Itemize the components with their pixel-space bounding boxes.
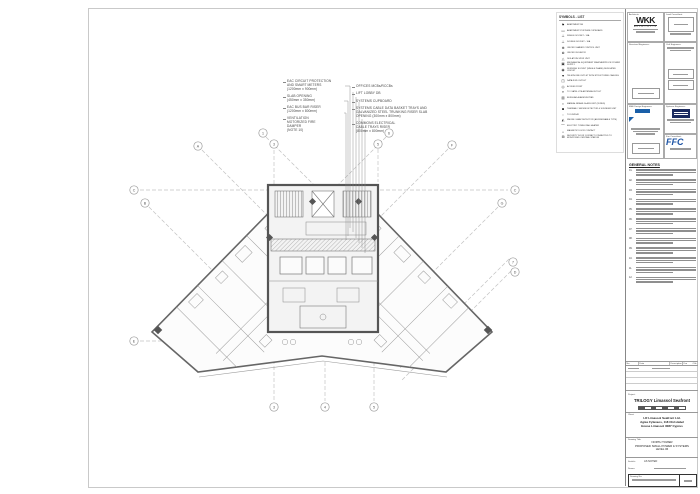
revision-col-label: No.	[626, 362, 639, 365]
left-annotations: EAC CIRCUIT PROTECTION AND SMART METERS …	[283, 80, 347, 136]
note-item: 05.	[629, 208, 696, 216]
note-item: 06.	[629, 218, 696, 226]
note-item: 11.	[629, 267, 696, 275]
legend-item-label: DOUBLE SOCKET - 16A	[567, 41, 590, 43]
legend-symbol-icon: ▣	[559, 62, 567, 66]
legend-item-label: TELEPHONE OUTLET WITH STRUCTURED CABLING	[567, 75, 619, 77]
note-number: 02.	[629, 179, 636, 187]
legend-symbol-icon: ⊗	[559, 51, 567, 55]
legend-symbol-icon: ▼	[559, 74, 567, 78]
lift-shaft	[352, 257, 372, 274]
note-item: 10.	[629, 257, 696, 265]
grid-bubble-label: 1	[262, 131, 264, 135]
note-number: 05.	[629, 208, 636, 216]
stamp-box	[668, 17, 694, 32]
text-line	[638, 93, 654, 95]
grid-bubble-label: C	[133, 188, 136, 192]
legend-item-label: APARTMENT DB	[567, 24, 583, 26]
scale-bar	[638, 406, 686, 410]
note-item: 12.	[629, 276, 696, 284]
note-number: 07.	[629, 228, 636, 236]
note-text	[636, 208, 696, 216]
stamp-box	[632, 88, 660, 99]
legend-symbol-icon: ⊥	[559, 40, 567, 44]
note-number: 11.	[629, 267, 636, 275]
notes-list: 01. 02. 03. 04.	[629, 169, 696, 284]
text-line	[633, 131, 658, 133]
meta-section: Scale/s: AS NOTED Drawn:	[626, 458, 698, 474]
legend-item-label: TV / SATELLITE ANTENNA OUTLET	[567, 91, 601, 93]
civil-cell: Civil Engineers:	[664, 42, 697, 104]
drawing-sheet: ABCE1365FCG7D345 EAC CIRCUIT PROTECTION …	[0, 0, 700, 494]
general-notes: GENERAL NOTES 01. 02. 03.	[626, 161, 698, 359]
lift-shaft	[306, 257, 324, 274]
note-item: 09.	[629, 247, 696, 255]
note-text	[636, 189, 696, 197]
annotation-label: EAC CIRCUIT PROTECTION AND SMART METERS …	[283, 80, 347, 92]
grid-bubble-label: D	[514, 270, 517, 274]
text-line	[673, 85, 688, 87]
legend-item: ▣ MECHANICAL EQUIPMENT WEATHERPROOF POWE…	[559, 62, 621, 68]
note-text	[636, 228, 696, 236]
client-lines: LR Limassol Seafront Ltd.Agias Fylaxeos,…	[628, 416, 696, 428]
note-text	[636, 237, 696, 245]
mep-flag-logo-icon	[629, 117, 634, 122]
ffc-logo: FFC	[666, 138, 695, 147]
text-line	[670, 122, 692, 124]
grid-bubble-label: 3	[273, 142, 275, 146]
legend-item-label: BURGLAR ALARM KEYPAD	[567, 97, 594, 99]
grid-bubble-label: 5	[377, 142, 379, 146]
legend-list: ⚑ APARTMENT DB ▭ APARTMENT SYSTEMS CUPBO…	[559, 23, 621, 140]
revision-col-label: Description	[670, 362, 683, 365]
corridor	[271, 239, 375, 251]
legend-item-label: WORKING SOCKET (SINGLE PHASE) DEDICATED …	[567, 68, 621, 72]
drawn-label: Drawn:	[628, 468, 644, 470]
drawing-number-cell: Drawing No:	[629, 475, 680, 486]
wkk-logo: WKK	[629, 16, 662, 25]
legend-symbol-icon: ⊕	[559, 46, 567, 50]
note-text	[636, 179, 696, 187]
project-label: Project:	[628, 394, 696, 396]
project-name: TRILOGY Limassol Seafront	[628, 398, 696, 403]
lift-shaft	[328, 257, 346, 274]
legend-symbol-icon: ▪	[559, 102, 567, 106]
text-line	[632, 479, 675, 481]
legend-item-label: ON/OFF SHAVER CONTROL UNIT	[567, 47, 600, 49]
note-number: 08.	[629, 237, 636, 245]
legend-title: SYMBOLS - LIST	[559, 15, 621, 21]
note-item: 01.	[629, 169, 696, 177]
structural-label: Structural Engineers:	[629, 44, 662, 46]
grid-bubble-label: 4	[324, 405, 326, 409]
note-item: 04.	[629, 198, 696, 206]
note-item: 02.	[629, 179, 696, 187]
drawing-title-line: LEVEL 06	[628, 448, 696, 452]
legend-item: ◉ WORKING SOCKET (SINGLE PHASE) DEDICATE…	[559, 67, 621, 73]
legend-item-label: SINGLE SOCKET - 16A	[567, 35, 589, 37]
note-text	[636, 198, 696, 206]
legend-symbol-icon: ⊥	[559, 34, 567, 38]
grid-bubble-label: G	[501, 201, 504, 205]
annotation-label: OFFICES MCBs/RCCBs	[352, 85, 472, 89]
text-line	[670, 33, 692, 35]
note-item: 03.	[629, 189, 696, 197]
note-text	[636, 267, 696, 275]
title-block: Architects: WKK ARCHITECTS Lead Consulta…	[625, 9, 697, 486]
revision-row	[626, 384, 698, 389]
legend-item-label: ISOLATION SPUR UNIT	[567, 58, 590, 60]
legend-symbol-icon: ⚑	[559, 23, 567, 27]
lead-consultant-cell: Lead Consultant:	[664, 12, 697, 42]
text-line	[633, 29, 658, 31]
text-line	[674, 24, 688, 26]
stamp-box	[668, 69, 694, 79]
annotation-label: VENTILATION MOTORIZED FIRE DAMPER (NOTE …	[283, 117, 347, 132]
note-text	[636, 276, 696, 284]
legend-item-label: ACCESS POINT	[567, 86, 582, 88]
legend-symbol-icon: ◉	[559, 68, 567, 72]
client-line: House Limassol 3087 Cyprus	[628, 424, 696, 428]
lead-consultant-label: Lead Consultant:	[666, 14, 695, 16]
grid-bubble-label: 5	[373, 405, 375, 409]
note-number: 10.	[629, 257, 636, 265]
top-annotations: OFFICES MCBs/RCCBsLIFT LOBBY DBSYSTEMS C…	[352, 85, 472, 137]
architect-cell: Architects: WKK ARCHITECTS	[627, 12, 664, 42]
legend-symbol-icon: ▫	[559, 113, 567, 117]
note-number: 12.	[629, 276, 636, 284]
client-section: Client: LR Limassol Seafront Ltd.Agias F…	[626, 413, 698, 438]
drawing-title-lines: NORTH TOWERPROPOSED SMALL POWER & SYSTEM…	[628, 441, 696, 452]
mep-cell: M&E Design Engineers:	[627, 104, 664, 159]
stair-right	[343, 191, 371, 217]
note-number: 04.	[629, 198, 636, 206]
drawing-number-label: Drawing No:	[630, 476, 678, 478]
text-line	[638, 148, 654, 150]
revision-table: No.DateDescriptionDrnChk	[626, 361, 698, 391]
legend-item-label: APARTMENT SYSTEMS CUPBOARD	[567, 30, 602, 32]
note-text	[636, 257, 696, 265]
legend-item-label: THERMAL / SMOKE DETECTOR & SOUNDER UNIT	[567, 108, 616, 110]
note-item: 08.	[629, 237, 696, 245]
stamp-box	[668, 80, 694, 90]
civil-label: Civil Engineers:	[666, 44, 695, 46]
stamp-box	[632, 143, 660, 154]
general-notes-title: GENERAL NOTES	[629, 163, 696, 167]
note-text	[636, 169, 696, 177]
revision-cell	[680, 475, 696, 486]
mep-label: M&E Design Engineers:	[629, 106, 662, 108]
note-text	[636, 218, 696, 226]
legend-item-label: DATA RJ45 OUTLET	[567, 80, 586, 82]
legend-symbol-icon: ▭	[559, 29, 567, 33]
mep-logo-bar	[635, 109, 650, 113]
legend-symbol-icon: ◙	[559, 107, 567, 111]
legend-item-label: SMOKE / HEAT DETECTOR (ADDRESSABLE TYPE)	[567, 119, 617, 121]
grid-bubble-label: 7	[512, 260, 514, 264]
scale-value: AS NOTED	[644, 460, 657, 463]
legend-item: ⊞ SECURITY DOOR CONTACT CONNECTED TO MON…	[559, 134, 621, 140]
systems-cell: Systems Engineers:	[664, 104, 697, 134]
annotation-label: SLAB OPENING (450mm x 350mm)	[283, 95, 347, 103]
text-line	[670, 148, 692, 150]
legend-item-label: MANUAL BREAK GLASS UNIT (IN RED)	[567, 103, 605, 105]
project-section: Project: TRILOGY Limassol Seafront	[626, 393, 698, 413]
structural-cell: Structural Engineers:	[627, 42, 664, 104]
legend-item-label: MECHANICAL EQUIPMENT WEATHERPROOF POWER …	[567, 62, 621, 66]
note-number: 03.	[629, 189, 636, 197]
text-line	[636, 31, 656, 33]
annotation-label: SYSTEMS CUPBOARD	[352, 100, 472, 104]
systems-label: Systems Engineers:	[666, 106, 695, 108]
legend-item-label: ELECTRIC TOWEL RAIL HEATER	[567, 125, 599, 127]
text-line	[631, 128, 661, 130]
grid-bubble-label: 3	[273, 405, 275, 409]
legend-symbol-icon: ⌂	[559, 130, 567, 134]
note-number: 09.	[629, 247, 636, 255]
text-line	[670, 50, 692, 52]
note-item: 07.	[629, 228, 696, 236]
note-number: 01.	[629, 169, 636, 177]
grid-bubble-label: C	[514, 188, 517, 192]
legend-symbol-icon: ◫	[559, 79, 567, 83]
revision-col-label: Drn	[683, 362, 692, 365]
annotation-label: EAC BUS BAR RISER (1200mm x 800mm)	[283, 106, 347, 114]
legend-item-label: SECURITY DOOR CONTACT CONNECTED TO MONIT…	[567, 135, 621, 139]
legend-symbol-icon: ◭	[559, 118, 567, 122]
note-number: 06.	[629, 218, 636, 226]
scale-label: Scale/s:	[628, 461, 644, 463]
legend-symbol-icon: ¤	[559, 90, 567, 94]
legend-item-label: MAGNETIC DOOR CONTACT	[567, 130, 595, 132]
text-line	[684, 480, 692, 482]
text-line	[667, 119, 693, 121]
annotation-label: LIFT LOBBY DB	[352, 92, 472, 96]
drawing-number-bar: Drawing No:	[628, 474, 697, 487]
symbols-legend: SYMBOLS - LIST ⚑ APARTMENT DB ▭ APARTMEN…	[556, 12, 624, 153]
lift-shaft	[280, 257, 302, 274]
legend-symbol-icon: △	[559, 57, 567, 61]
note-text	[636, 247, 696, 255]
revision-col-label: Date	[639, 362, 670, 365]
systems-logo	[672, 109, 690, 118]
legend-item-label: ON/OFF ISOLATOR	[567, 52, 586, 54]
legend-symbol-icon: ⌒	[559, 123, 567, 128]
drawn-row: Drawn:	[626, 465, 698, 472]
text-line	[667, 47, 693, 49]
text-line	[636, 133, 656, 135]
annotation-label: COMMONS ELECTRICAL CABLE TRAYS RISER (80…	[352, 122, 472, 134]
legend-symbol-icon: ◎	[559, 85, 567, 89]
annotation-label: SYSTEMS CABLE DATA BASKET TRAYS AND GALV…	[352, 107, 472, 119]
drawing-title-section: Drawing Title: NORTH TOWERPROPOSED SMALL…	[626, 438, 698, 458]
fire-consultant-cell: Fire Consultant: FFC	[664, 134, 697, 159]
legend-symbol-icon: ▥	[559, 96, 567, 100]
revision-col-label: Chk	[692, 362, 698, 365]
legend-symbol-icon: ⊞	[559, 135, 567, 139]
text-line	[673, 74, 688, 76]
scale-row: Scale/s: AS NOTED	[626, 458, 698, 465]
stair-left	[275, 191, 303, 217]
legend-item-label: TO DISPLAY	[567, 114, 579, 116]
